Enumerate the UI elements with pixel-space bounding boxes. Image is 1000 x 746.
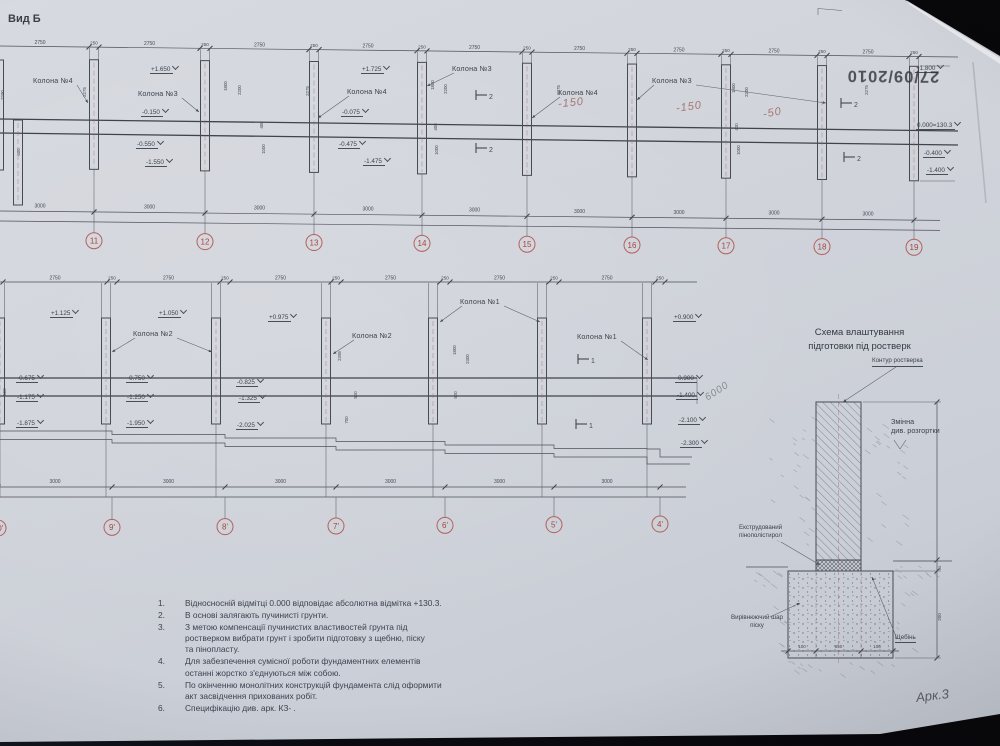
note-number: 2. — [152, 610, 185, 621]
photo-scene: 2502750300011250275030001225027503000132… — [0, 0, 1000, 746]
elevation-mark: -1.400 — [926, 159, 948, 177]
note-number: 1. — [152, 598, 185, 609]
elevation-mark: -1.250 — [126, 386, 148, 404]
elevation-mark: -2.100 — [678, 409, 700, 427]
note-text: Для забезпечення сумісної роботи фундаме… — [185, 656, 508, 678]
elevation-mark: -0.675 — [16, 367, 38, 385]
elevation-mark: -1.400 — [676, 384, 698, 402]
note-number: 6. — [152, 703, 185, 714]
elevation-mark: -0.075 — [341, 101, 363, 119]
note-item: 3.З метою компенсації пучинистих властив… — [152, 622, 508, 655]
view-label: Вид Б — [8, 13, 41, 25]
elevation-mark: +0.900 — [673, 306, 696, 324]
elevation-mark: -0.900 — [675, 367, 697, 385]
column-label: Колона №1 — [460, 297, 500, 306]
date-stamp: 27/09/2010 — [833, 65, 953, 85]
handwritten-note: -150 — [675, 99, 702, 115]
notes-list: 1.Відносноснiй відмітці 0.000 відповідає… — [152, 598, 508, 715]
elevation-mark: +0.975 — [268, 306, 291, 324]
column-label: Колона №4 — [33, 76, 73, 85]
note-item: 2.В основі залягають пучинисті грунти. — [152, 610, 508, 621]
elevation-mark: -1.950 — [126, 412, 148, 430]
note-text: Специфікацію див. арк. КЗ- . — [185, 703, 508, 714]
note-number: 3. — [152, 622, 185, 655]
elevation-mark: -0.550 — [136, 133, 158, 151]
column-label: Колона №3 — [452, 64, 492, 73]
elevation-mark: +1.650 — [150, 58, 173, 76]
handwritten-note: -150 — [557, 96, 584, 111]
label-sand-layer: Вирівнюючий шар піску — [731, 614, 783, 630]
elevation-mark: -2.025 — [236, 414, 258, 432]
column-label: Колона №3 — [138, 89, 178, 98]
note-item: 4.Для забезпечення сумісної роботи фунда… — [152, 656, 508, 678]
elevation-mark: -0.150 — [141, 101, 163, 119]
schema-title-line2: підготовки під ростверк — [752, 340, 967, 354]
label-gravel: Щебінь — [895, 634, 916, 643]
note-text: По окінченню монолітних конструкцій фунд… — [185, 680, 508, 702]
column-label: Колона №2 — [352, 331, 392, 340]
elevation-mark: -1.550 — [145, 151, 167, 169]
note-number: 4. — [152, 656, 185, 678]
elevation-mark: -1.875 — [16, 412, 38, 430]
label-variable-height: Змінна див. розгортки — [891, 417, 965, 436]
blueprint-sheet: 2502750300011250275030001225027503000132… — [0, 0, 1000, 746]
handwritten-note: 6000 — [703, 380, 731, 404]
schema-title-line1: Схема влаштування — [752, 326, 967, 340]
column-label: Колона №3 — [652, 76, 692, 85]
schema-title: Схема влаштування підготовки під роствер… — [752, 326, 967, 355]
elevation-mark: -0.750 — [126, 367, 148, 385]
column-label: Колона №4 — [347, 87, 387, 96]
elevation-mark: -0.475 — [338, 133, 360, 151]
elevation-mark: +1.050 — [158, 302, 181, 320]
note-item: 6.Специфікацію див. арк. КЗ- . — [152, 703, 508, 714]
note-text: З метою компенсації пучинистих властивос… — [185, 622, 508, 655]
elevation-mark: 0.000=130.3 — [916, 114, 955, 132]
elevation-mark: -1.175 — [16, 386, 38, 404]
note-text: В основі залягають пучинисті грунти. — [185, 610, 508, 621]
elevation-mark: +1.725 — [361, 58, 384, 76]
label-rostverk-contour: Контур ростверка — [872, 357, 923, 367]
column-label: Колона №2 — [133, 329, 173, 338]
handwritten-note: -50 — [762, 105, 783, 120]
elevation-mark: -1.325 — [238, 387, 260, 405]
column-label: Колона №1 — [577, 332, 617, 341]
note-item: 5.По окінченню монолітних конструкцій фу… — [152, 680, 508, 702]
note-number: 5. — [152, 680, 185, 702]
elevation-mark: -2.300 — [680, 432, 702, 450]
label-polystyrene: Екструдований пінополістирол — [739, 524, 799, 540]
note-text: Відносноснiй відмітці 0.000 відповідає а… — [185, 598, 508, 609]
elevation-mark: -1.475 — [363, 150, 385, 168]
elevation-mark: +1.125 — [50, 302, 73, 320]
elevation-mark: -0.400 — [923, 142, 945, 160]
note-item: 1.Відносноснiй відмітці 0.000 відповідає… — [152, 598, 508, 609]
